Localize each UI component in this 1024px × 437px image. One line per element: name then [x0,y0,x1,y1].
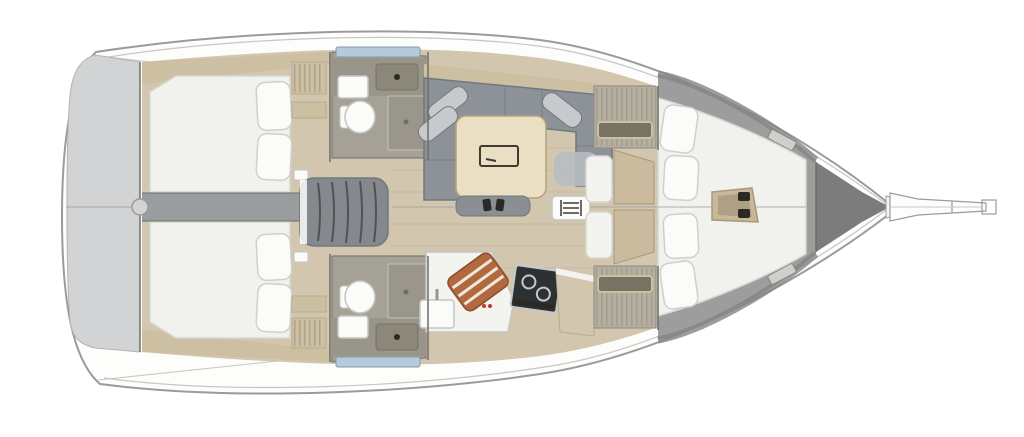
red-mark [488,304,492,308]
wardrobe-port [594,86,656,148]
shelf [598,122,652,138]
pillow [256,233,292,281]
rudder-post-ring [132,199,148,215]
dining-table [456,116,546,198]
shower-drain [404,290,409,295]
shoe [495,199,505,212]
step-tab [294,252,308,262]
sink-mirror [338,316,368,338]
shoe [482,199,492,212]
head-port [332,47,426,158]
red-mark [482,304,486,308]
basin-drain [394,74,400,80]
head-starboard [332,256,426,367]
pillow [256,81,292,131]
window [336,47,420,57]
mast-step-glyph [561,200,581,216]
pillow [663,213,699,259]
stove [510,265,561,313]
step-tab [294,170,308,180]
shower-drain [404,120,409,125]
shelf [598,276,652,292]
stern-platform [67,55,140,352]
step-latch [738,192,750,201]
window [336,357,420,367]
sink-mirror [338,76,368,98]
toilet-bowl [345,281,375,313]
steps-left-rail [300,180,307,244]
galley-sink [420,300,454,328]
seat-cushion [586,212,612,258]
salon-bench [456,196,530,216]
boat-floor-plan [0,0,1024,437]
bowsprit [886,193,996,221]
step-latch [738,209,750,218]
transom-deck [67,55,140,352]
basin-drain [394,334,400,340]
galley-counter-wood [556,272,594,336]
pillow [256,283,292,333]
seat-cushion [586,156,612,202]
forward-cabin [658,74,816,340]
side-locker-port [292,62,326,118]
toilet-bowl [345,101,375,133]
wardrobe-starboard [594,266,656,328]
boat-floor-plan-canvas [0,0,1024,437]
pillow [659,104,699,154]
pillow [663,155,699,201]
pillow [659,260,699,310]
side-locker-starboard [292,296,326,348]
pillow [256,133,292,181]
